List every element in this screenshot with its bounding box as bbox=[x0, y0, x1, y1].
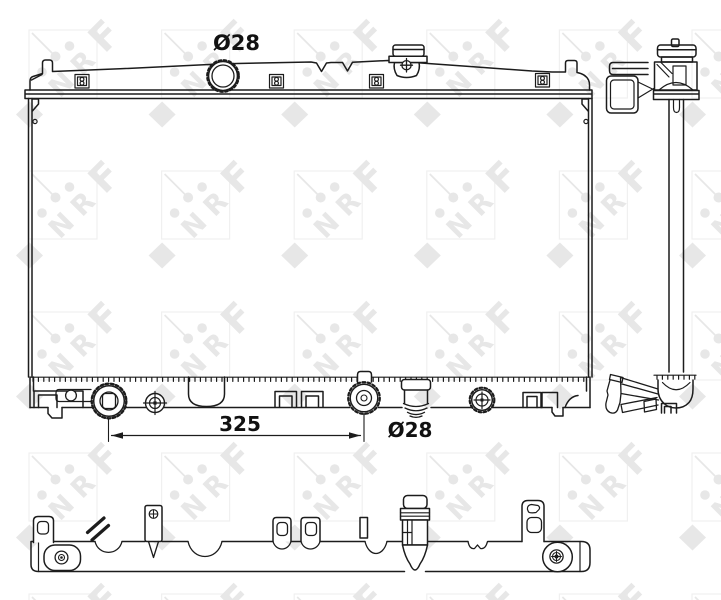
watermark-tile: NRF bbox=[546, 152, 659, 268]
watermark-tile: NRF bbox=[546, 11, 659, 127]
nrf-watermark-pattern: NRFNRFNRFNRFNRFNRFNRFNRFNRFNRFNRFNRFNRFN… bbox=[16, 11, 721, 600]
filler-cap bbox=[389, 45, 427, 78]
bottom-outlet-side-profile bbox=[401, 496, 430, 571]
technical-drawing-page: NRFNRFNRFNRFNRFNRFNRFNRFNRFNRFNRFNRFNRFN… bbox=[0, 0, 721, 600]
watermark-letter: F bbox=[212, 575, 261, 600]
watermark-tile: NRF bbox=[414, 575, 527, 600]
watermark-tile: NRF bbox=[281, 575, 394, 600]
top-flange bbox=[25, 90, 592, 99]
bottom-left-boss bbox=[44, 545, 81, 571]
top-inlet-port bbox=[207, 60, 239, 92]
bottom-right-boss bbox=[543, 542, 573, 572]
watermark-tile: NRF bbox=[414, 434, 527, 550]
watermark-letter: F bbox=[478, 575, 527, 600]
lower-hose-fitting bbox=[348, 372, 380, 414]
left-bracket bbox=[29, 99, 39, 378]
bottom-bracket-plate bbox=[522, 501, 544, 542]
watermark-tile: NRF bbox=[281, 11, 394, 127]
side-core-profile bbox=[669, 100, 684, 373]
scallop-cutouts bbox=[95, 542, 387, 557]
watermark-tile: NRF bbox=[149, 152, 262, 268]
watermark-letter: F bbox=[345, 575, 394, 600]
side-seam bbox=[654, 375, 696, 379]
dimension-325: 325 bbox=[109, 412, 365, 442]
watermark-tile: NRF bbox=[679, 434, 721, 550]
side-filler-cap bbox=[658, 39, 697, 62]
watermark-tile: NRF bbox=[679, 152, 721, 268]
watermark-letter: F bbox=[610, 575, 659, 600]
screw-fitting-right bbox=[470, 388, 495, 413]
bottom-outlet-diameter-label: Ø28 bbox=[388, 418, 433, 442]
core-tank-seam bbox=[30, 377, 590, 381]
watermark-tile: NRF bbox=[149, 11, 262, 127]
watermark-tile: NRF bbox=[546, 293, 659, 409]
watermark-tile: NRF bbox=[149, 434, 262, 550]
watermark-tile: NRF bbox=[679, 11, 721, 127]
watermark-tile: NRF bbox=[16, 152, 129, 268]
arrowhead-left bbox=[112, 432, 124, 438]
watermark-tile: NRF bbox=[281, 293, 394, 409]
connection-distance-label: 325 bbox=[219, 412, 261, 436]
watermark-tile: NRF bbox=[679, 575, 721, 600]
bottom-small-tab bbox=[360, 518, 368, 539]
watermark-tile: NRF bbox=[546, 575, 659, 600]
drain-plug bbox=[56, 384, 126, 419]
radiator-technical-drawing: NRFNRFNRFNRFNRFNRFNRFNRFNRFNRFNRFNRFNRFN… bbox=[0, 0, 721, 600]
bottom-crossmember bbox=[31, 542, 590, 572]
bracket-hole bbox=[584, 119, 588, 123]
side-mount-bracket bbox=[606, 375, 659, 414]
watermark-tile: NRF bbox=[679, 293, 721, 409]
wave-notch bbox=[468, 542, 488, 549]
watermark-tile: NRF bbox=[414, 152, 527, 268]
watermark-tile: NRF bbox=[16, 575, 129, 600]
watermark-letter: F bbox=[80, 575, 129, 600]
left-foot bbox=[48, 408, 62, 419]
watermark-tile: NRF bbox=[281, 152, 394, 268]
bottom-left-tab bbox=[34, 517, 54, 543]
right-foot bbox=[552, 408, 563, 417]
watermark-tile: NRF bbox=[281, 434, 394, 550]
bottom-center-tab bbox=[145, 506, 162, 558]
watermark-tile: NRF bbox=[546, 434, 659, 550]
top-inlet-diameter-label: Ø28 bbox=[213, 31, 260, 55]
watermark-tile: NRF bbox=[414, 293, 527, 409]
watermark-tile: NRF bbox=[149, 575, 262, 600]
watermark-tile: NRF bbox=[149, 293, 262, 409]
